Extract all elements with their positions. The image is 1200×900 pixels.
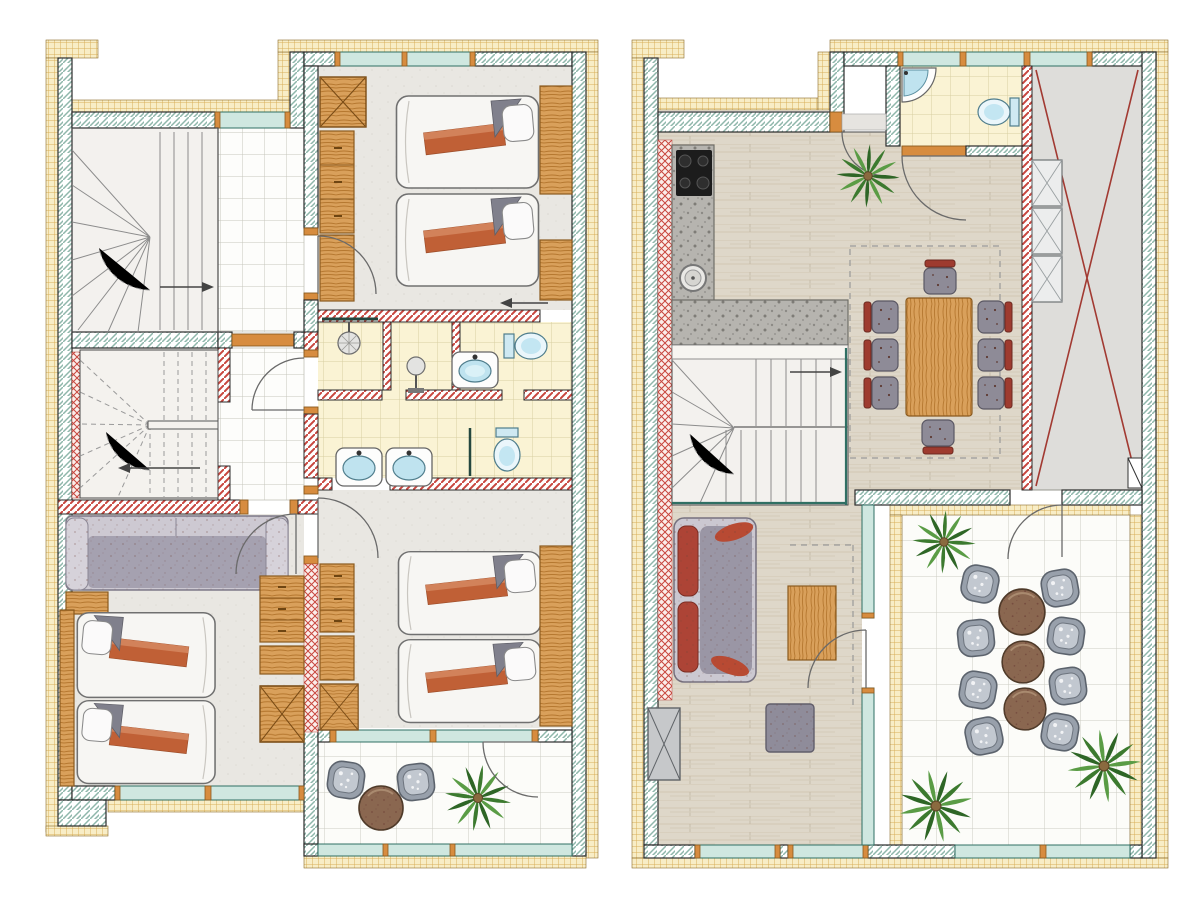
window-bottom-left — [695, 845, 780, 858]
patio-chair — [396, 762, 436, 802]
single-bed — [77, 613, 215, 698]
cooktop — [676, 150, 712, 196]
dresser — [320, 564, 354, 632]
counter-horizontal — [672, 300, 848, 345]
crossed-wardrobe — [320, 684, 358, 730]
toilet — [494, 428, 520, 471]
floor-plan-page — [0, 0, 1200, 900]
patio-chair — [1048, 666, 1089, 707]
floor-plan-canvas — [0, 0, 1200, 900]
toilet — [978, 98, 1019, 126]
glass-wall-living-terrace — [862, 505, 874, 845]
crossed-wardrobe — [320, 77, 366, 127]
dresser — [260, 576, 304, 642]
balcony-door-band — [318, 730, 572, 742]
headboard-panel — [60, 610, 74, 786]
round-table — [359, 786, 403, 830]
headboard-panel — [540, 86, 572, 194]
dining-chair — [922, 420, 954, 454]
sofa — [674, 518, 756, 682]
dining-chair — [978, 339, 1012, 371]
patio-chair — [1039, 711, 1081, 753]
balcony-railing — [318, 844, 572, 856]
hallway-floor — [218, 348, 304, 500]
single-bed — [77, 701, 215, 784]
stair-upper-floor — [72, 128, 218, 332]
patio-chair — [1046, 616, 1087, 657]
dining-chair — [864, 339, 898, 371]
window-wc-top — [898, 52, 1092, 66]
window-bottom-left-2 — [788, 845, 868, 858]
single-bed — [399, 640, 541, 723]
patio-chair — [957, 669, 999, 711]
pouf — [766, 704, 814, 752]
single-bed — [397, 194, 539, 286]
washbasin — [386, 448, 432, 486]
nightstand — [540, 240, 572, 300]
terrace-railing-bottom — [955, 845, 1130, 858]
shelf — [260, 646, 304, 674]
single-bed — [399, 552, 541, 635]
toilet — [504, 333, 547, 359]
patio-chair — [1039, 567, 1081, 609]
dining-chair — [864, 377, 898, 409]
stacked-display-cabinet — [1032, 160, 1062, 302]
coffee-table — [788, 586, 836, 660]
dining-chair — [924, 260, 956, 294]
dining-chair — [864, 301, 898, 333]
patio-chair — [956, 618, 996, 658]
crossed-cabinet — [648, 708, 680, 780]
entry-threshold — [842, 114, 886, 130]
patio-chair — [326, 760, 367, 801]
round-table — [999, 589, 1045, 635]
crossed-wardrobe — [260, 686, 304, 742]
headboard-panel — [540, 546, 572, 726]
round-table — [1002, 641, 1044, 683]
stair-floor — [672, 345, 848, 505]
washbasin — [452, 352, 498, 388]
washbasin — [336, 448, 382, 486]
dresser — [320, 131, 354, 233]
landing-floor — [218, 128, 304, 332]
round-table — [1004, 688, 1046, 730]
window-bedroom-north — [335, 52, 475, 66]
dining-chair — [978, 301, 1012, 333]
dining-chair — [978, 377, 1012, 409]
cabinet — [320, 636, 354, 680]
upper-floor-plan — [46, 40, 598, 868]
sofa — [66, 516, 288, 590]
dining-table — [906, 298, 972, 416]
ground-floor-plan — [632, 40, 1168, 868]
window-bedroom-sw — [115, 786, 304, 800]
round-sink — [680, 265, 706, 291]
window-landing-top — [215, 112, 290, 128]
single-bed — [397, 96, 539, 188]
